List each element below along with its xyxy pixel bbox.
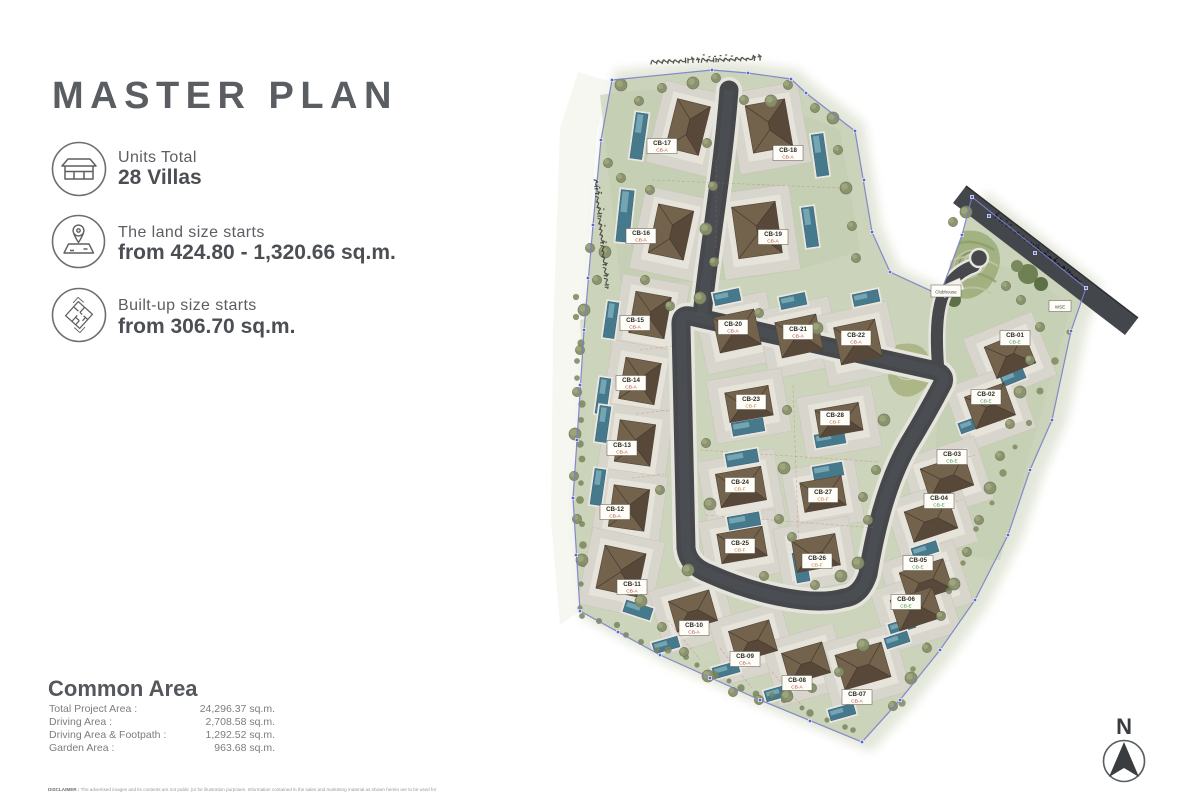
- svg-text:CB-A: CB-A: [688, 629, 700, 635]
- svg-text:CB-A: CB-A: [767, 238, 779, 244]
- svg-text:CB-09: CB-09: [736, 653, 754, 660]
- svg-text:CB-E: CB-E: [1009, 339, 1020, 345]
- svg-text:CB-A: CB-A: [782, 154, 794, 160]
- svg-text:N: N: [1116, 714, 1132, 739]
- svg-text:CB-22: CB-22: [847, 332, 865, 339]
- svg-text:CB-04: CB-04: [930, 495, 948, 502]
- svg-text:CB-A: CB-A: [629, 324, 641, 330]
- svg-text:CB-A: CB-A: [635, 237, 647, 243]
- svg-text:CB-F: CB-F: [734, 486, 745, 492]
- svg-text:CB-E: CB-E: [980, 398, 991, 404]
- svg-text:CB-20: CB-20: [724, 321, 742, 328]
- svg-text:CB-F: CB-F: [811, 562, 822, 568]
- svg-text:CB-A: CB-A: [850, 339, 862, 345]
- svg-text:CB-27: CB-27: [814, 489, 832, 496]
- svg-text:CB-E: CB-E: [900, 603, 911, 609]
- svg-text:CB-A: CB-A: [727, 328, 739, 334]
- svg-text:CB-24: CB-24: [731, 479, 749, 486]
- svg-text:CB-E: CB-E: [912, 564, 923, 570]
- svg-text:CB-F: CB-F: [745, 403, 756, 409]
- svg-text:WSE: WSE: [1055, 305, 1065, 310]
- svg-text:CB-A: CB-A: [792, 333, 804, 339]
- svg-text:CB-E: CB-E: [946, 458, 957, 464]
- svg-text:CB-A: CB-A: [609, 513, 621, 519]
- svg-text:CB-08: CB-08: [788, 677, 806, 684]
- svg-text:CB-05: CB-05: [909, 557, 927, 564]
- svg-text:CB-11: CB-11: [623, 581, 641, 588]
- svg-text:CB-A: CB-A: [616, 449, 628, 455]
- svg-text:CB-A: CB-A: [626, 588, 638, 594]
- svg-text:CB-03: CB-03: [943, 451, 961, 458]
- svg-text:CB-12: CB-12: [606, 506, 624, 513]
- svg-text:CB-01: CB-01: [1006, 332, 1024, 339]
- svg-text:CB-16: CB-16: [632, 230, 650, 237]
- svg-text:CB-06: CB-06: [897, 596, 915, 603]
- svg-text:CB-F: CB-F: [829, 419, 840, 425]
- svg-text:CB-A: CB-A: [791, 684, 803, 690]
- svg-text:CB-F: CB-F: [734, 547, 745, 553]
- svg-text:CB-E: CB-E: [933, 502, 944, 508]
- svg-text:CB-23: CB-23: [742, 396, 760, 403]
- svg-text:CB-21: CB-21: [789, 326, 807, 333]
- svg-text:CB-A: CB-A: [851, 698, 863, 704]
- svg-text:CB-A: CB-A: [739, 660, 751, 666]
- svg-text:CB-28: CB-28: [826, 412, 844, 419]
- svg-text:CB-F: CB-F: [817, 496, 828, 502]
- svg-text:CB-17: CB-17: [653, 140, 671, 147]
- svg-text:CB-15: CB-15: [626, 317, 644, 324]
- svg-text:CB-25: CB-25: [731, 540, 749, 547]
- svg-text:CB-18: CB-18: [779, 147, 797, 154]
- svg-text:Clubhouse: Clubhouse: [935, 290, 957, 295]
- svg-text:CB-13: CB-13: [613, 442, 631, 449]
- svg-text:CB-14: CB-14: [622, 377, 640, 384]
- svg-text:CB-02: CB-02: [977, 391, 995, 398]
- svg-text:CB-10: CB-10: [685, 622, 703, 629]
- svg-text:CB-07: CB-07: [848, 691, 866, 698]
- svg-text:CB-A: CB-A: [625, 384, 637, 390]
- svg-text:CB-A: CB-A: [656, 147, 668, 153]
- svg-text:CB-26: CB-26: [808, 555, 826, 562]
- svg-text:CB-19: CB-19: [764, 231, 782, 238]
